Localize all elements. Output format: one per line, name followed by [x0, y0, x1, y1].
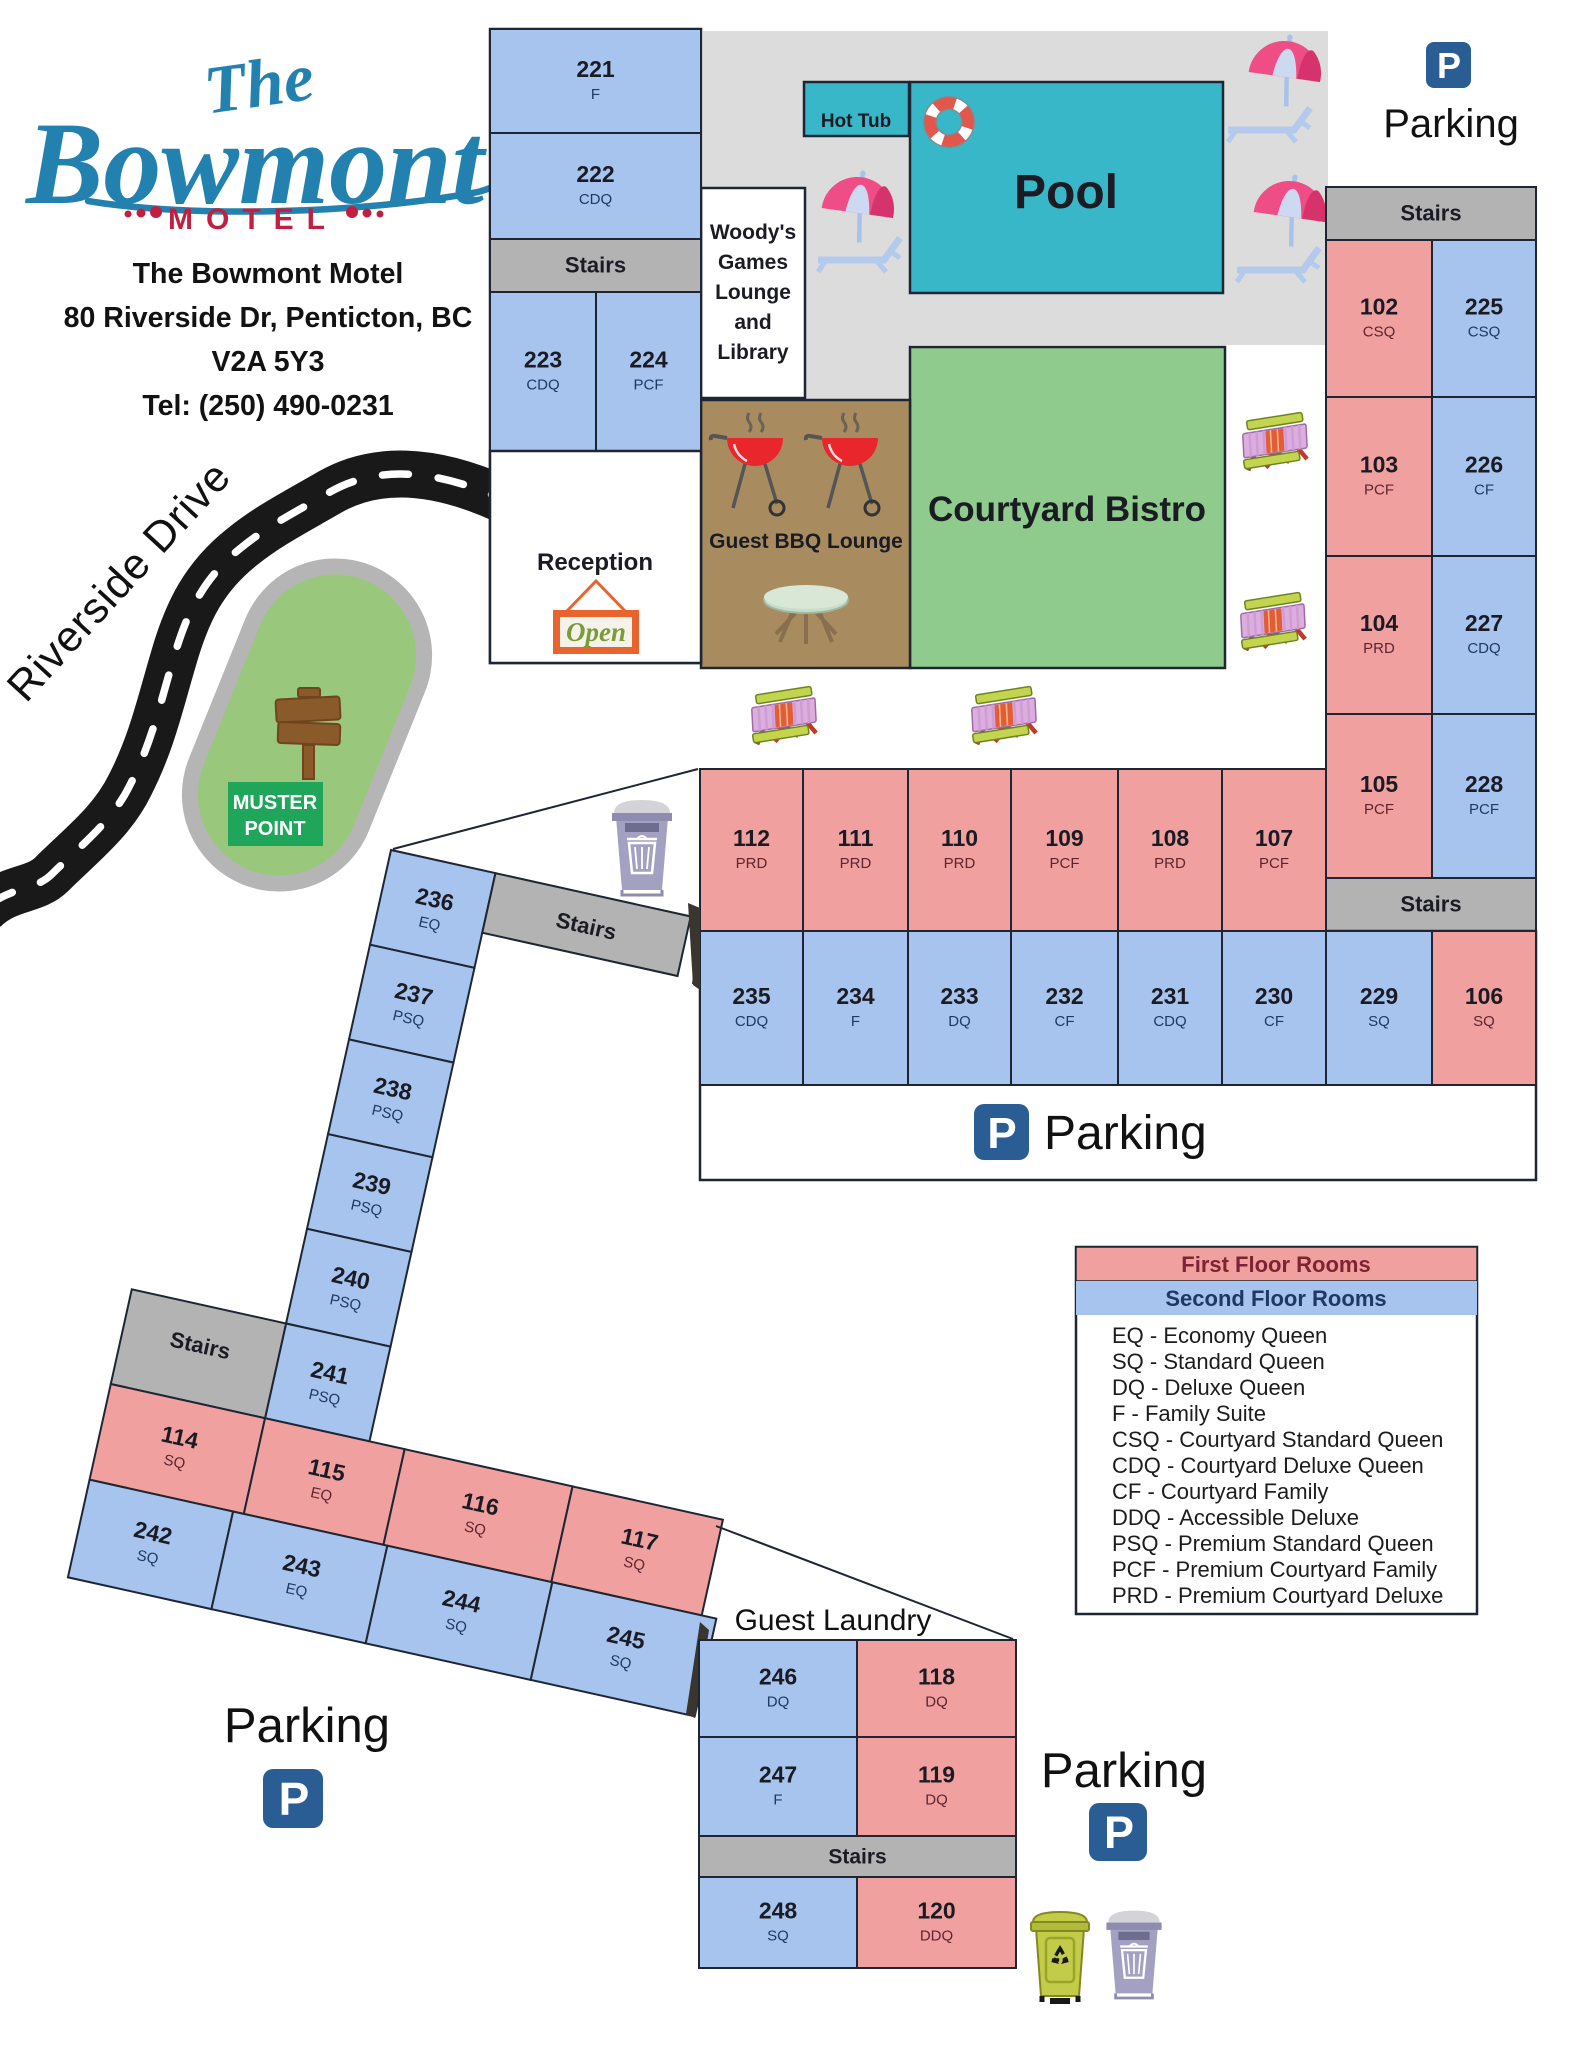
svg-text:PCF: PCF	[1050, 855, 1080, 872]
svg-text:227: 227	[1465, 610, 1503, 636]
svg-text:DDQ - Accessible Deluxe: DDQ - Accessible Deluxe	[1112, 1505, 1359, 1530]
svg-text:PSQ - Premium Standard Queen: PSQ - Premium Standard Queen	[1112, 1531, 1434, 1556]
svg-text:PRD: PRD	[944, 855, 976, 872]
svg-text:PCF: PCF	[1259, 855, 1289, 872]
svg-text:222: 222	[576, 161, 614, 187]
svg-text:CSQ: CSQ	[1363, 324, 1396, 341]
svg-text:235: 235	[732, 983, 771, 1009]
svg-text:F: F	[773, 1792, 782, 1809]
svg-text:119: 119	[918, 1762, 955, 1788]
svg-text:CDQ: CDQ	[526, 377, 559, 394]
svg-text:Lounge: Lounge	[715, 281, 791, 304]
svg-text:CF - Courtyard Family: CF - Courtyard Family	[1112, 1479, 1328, 1504]
svg-text:V2A 5Y3: V2A 5Y3	[211, 346, 324, 378]
svg-text:PRD: PRD	[1154, 855, 1186, 872]
svg-text:Parking: Parking	[1041, 1744, 1207, 1798]
svg-text:230: 230	[1255, 983, 1293, 1009]
svg-text:231: 231	[1151, 983, 1190, 1009]
svg-text:229: 229	[1360, 983, 1398, 1009]
svg-text:Pool: Pool	[1014, 166, 1118, 219]
svg-text:Games: Games	[718, 251, 788, 274]
svg-text:120: 120	[917, 1898, 955, 1924]
svg-text:Parking: Parking	[224, 1699, 390, 1753]
svg-text:110: 110	[941, 825, 978, 851]
svg-text:SQ: SQ	[767, 1928, 789, 1945]
svg-text:SQ: SQ	[1473, 1013, 1495, 1030]
svg-text:80 Riverside Dr, Penticton, BC: 80 Riverside Dr, Penticton, BC	[64, 302, 473, 334]
svg-text:CF: CF	[1474, 482, 1494, 499]
svg-text:P: P	[279, 1773, 310, 1825]
svg-text:PRD - Premium Courtyard Deluxe: PRD - Premium Courtyard Deluxe	[1112, 1583, 1443, 1608]
svg-text:P: P	[1437, 45, 1461, 86]
svg-text:246: 246	[759, 1664, 797, 1690]
svg-text:DQ: DQ	[925, 1694, 948, 1711]
svg-text:CF: CF	[1264, 1013, 1284, 1030]
svg-text:Library: Library	[717, 341, 789, 364]
svg-text:224: 224	[629, 347, 668, 373]
svg-text:CSQ - Courtyard Standard Queen: CSQ - Courtyard Standard Queen	[1112, 1427, 1443, 1452]
svg-text:234: 234	[836, 983, 875, 1009]
svg-text:PCF: PCF	[1469, 801, 1499, 818]
svg-text:Second Floor Rooms: Second Floor Rooms	[1165, 1286, 1386, 1311]
svg-text:CDQ: CDQ	[579, 191, 612, 208]
svg-text:Stairs: Stairs	[828, 1846, 886, 1869]
svg-text:The Bowmont Motel: The Bowmont Motel	[133, 258, 404, 290]
svg-text:226: 226	[1465, 452, 1503, 478]
svg-text:111: 111	[838, 825, 874, 851]
svg-text:107: 107	[1255, 825, 1293, 851]
svg-text:F - Family Suite: F - Family Suite	[1112, 1401, 1266, 1426]
svg-text:F: F	[591, 86, 600, 103]
svg-text:PRD: PRD	[840, 855, 872, 872]
svg-text:104: 104	[1360, 610, 1399, 636]
svg-text:223: 223	[524, 347, 562, 373]
svg-text:108: 108	[1151, 825, 1190, 851]
svg-text:Tel: (250) 490-0231: Tel: (250) 490-0231	[142, 390, 394, 422]
svg-text:CDQ - Courtyard Deluxe Queen: CDQ - Courtyard Deluxe Queen	[1112, 1453, 1424, 1478]
svg-text:F: F	[851, 1013, 860, 1030]
svg-text:CDQ: CDQ	[735, 1013, 768, 1030]
svg-text:PRD: PRD	[1363, 640, 1395, 657]
svg-text:PCF: PCF	[1364, 801, 1394, 818]
svg-text:233: 233	[940, 983, 978, 1009]
svg-text:102: 102	[1360, 294, 1398, 320]
svg-text:109: 109	[1045, 825, 1083, 851]
svg-text:PCF - Premium Courtyard Family: PCF - Premium Courtyard Family	[1112, 1557, 1437, 1582]
svg-text:228: 228	[1465, 771, 1504, 797]
svg-text:DQ: DQ	[767, 1694, 790, 1711]
svg-text:Stairs: Stairs	[1400, 201, 1461, 226]
svg-text:EQ - Economy Queen: EQ - Economy Queen	[1112, 1323, 1327, 1348]
svg-text:CDQ: CDQ	[1467, 640, 1500, 657]
svg-text:and: and	[734, 311, 771, 334]
svg-text:DDQ: DDQ	[920, 1928, 953, 1945]
svg-text:CSQ: CSQ	[1468, 324, 1501, 341]
svg-text:Hot Tub: Hot Tub	[821, 111, 891, 132]
svg-text:DQ: DQ	[925, 1792, 948, 1809]
svg-text:CF: CF	[1055, 1013, 1075, 1030]
svg-text:221: 221	[576, 56, 615, 82]
svg-text:Parking: Parking	[1383, 102, 1519, 146]
svg-text:DQ - Deluxe Queen: DQ - Deluxe Queen	[1112, 1375, 1305, 1400]
svg-text:First Floor Rooms: First Floor Rooms	[1181, 1252, 1370, 1277]
svg-text:MOTEL: MOTEL	[168, 203, 338, 236]
svg-text:248: 248	[759, 1898, 798, 1924]
svg-text:103: 103	[1360, 452, 1398, 478]
svg-text:Woody's: Woody's	[710, 221, 796, 244]
svg-text:Parking: Parking	[1044, 1107, 1207, 1160]
svg-text:POINT: POINT	[244, 818, 305, 840]
svg-text:232: 232	[1045, 983, 1083, 1009]
svg-text:P: P	[1104, 1807, 1134, 1858]
svg-text:PCF: PCF	[634, 377, 664, 394]
svg-text:SQ - Standard Queen: SQ - Standard Queen	[1112, 1349, 1325, 1374]
svg-text:SQ: SQ	[1368, 1013, 1390, 1030]
svg-text:PCF: PCF	[1364, 482, 1394, 499]
svg-text:DQ: DQ	[948, 1013, 971, 1030]
svg-text:Open: Open	[566, 617, 626, 647]
svg-text:Guest Laundry: Guest Laundry	[735, 1604, 932, 1637]
svg-text:106: 106	[1465, 983, 1503, 1009]
svg-text:Guest BBQ Lounge: Guest BBQ Lounge	[709, 530, 903, 553]
svg-text:247: 247	[759, 1762, 797, 1788]
svg-text:112: 112	[733, 825, 770, 851]
svg-text:MUSTER: MUSTER	[233, 792, 318, 814]
svg-text:225: 225	[1465, 294, 1504, 320]
svg-text:P: P	[987, 1109, 1016, 1158]
svg-text:Stairs: Stairs	[1400, 892, 1461, 917]
svg-text:CDQ: CDQ	[1153, 1013, 1186, 1030]
svg-text:118: 118	[918, 1664, 955, 1690]
svg-text:Reception: Reception	[537, 549, 653, 576]
svg-text:Stairs: Stairs	[565, 253, 626, 278]
svg-text:105: 105	[1360, 771, 1399, 797]
svg-text:PRD: PRD	[736, 855, 768, 872]
svg-text:Courtyard Bistro: Courtyard Bistro	[928, 490, 1206, 529]
